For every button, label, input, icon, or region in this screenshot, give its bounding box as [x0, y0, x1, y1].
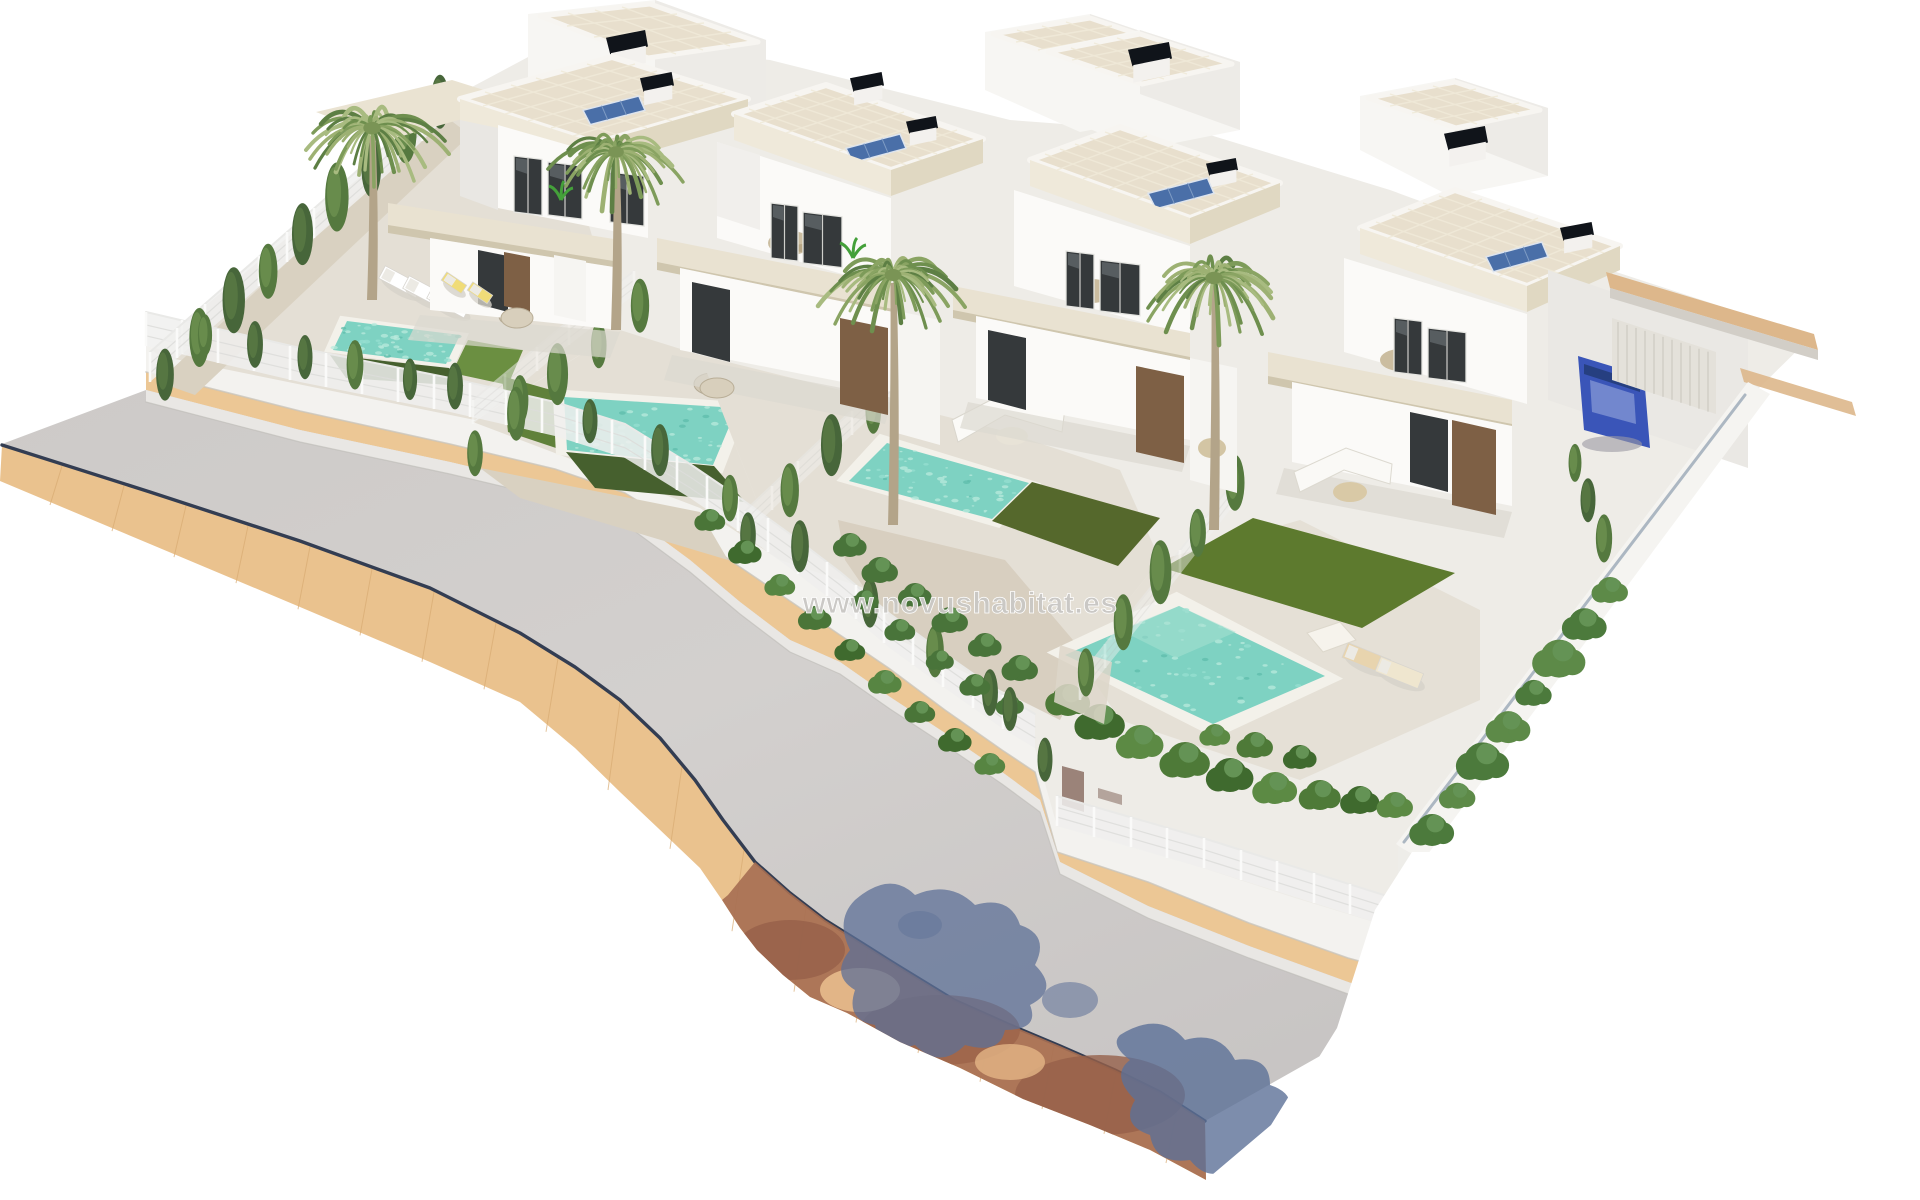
svg-text:www.novushabitat.es: www.novushabitat.es: [801, 587, 1117, 620]
